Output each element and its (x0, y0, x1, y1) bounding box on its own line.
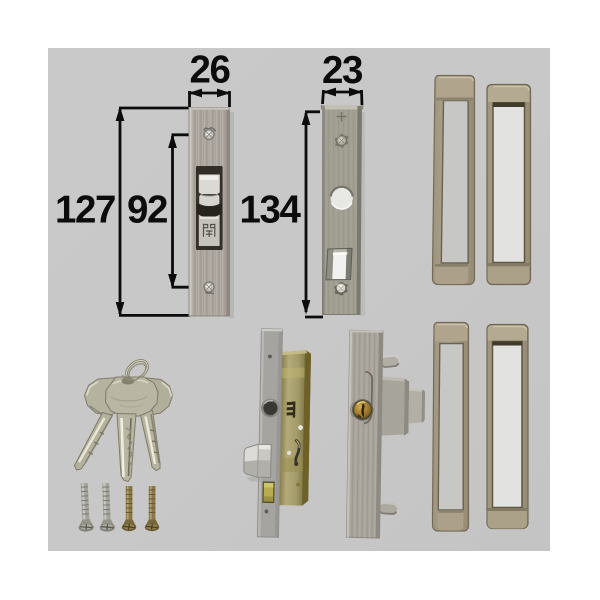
svg-text:26: 26 (189, 49, 230, 92)
svg-text:134: 134 (239, 189, 301, 232)
svg-text:127: 127 (55, 189, 115, 232)
svg-text:92: 92 (127, 189, 167, 232)
svg-text:23: 23 (322, 49, 363, 92)
